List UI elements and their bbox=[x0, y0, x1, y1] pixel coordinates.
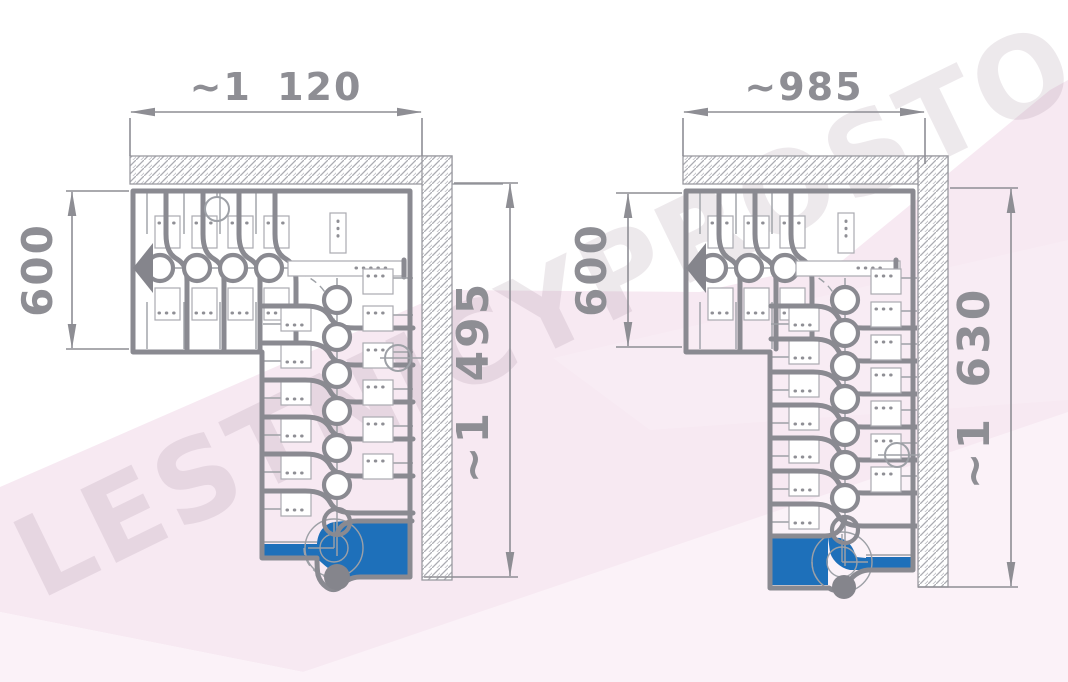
dimension-depth: 600 bbox=[13, 191, 129, 349]
drawing-canvas: LESTNICYPROSTO.RU bbox=[0, 0, 1068, 682]
step-modules-straight bbox=[147, 191, 296, 349]
entry-arrow bbox=[133, 243, 153, 293]
center-pole bbox=[324, 564, 350, 590]
dim-width-label: ~1 120 bbox=[190, 65, 363, 109]
staircase-plans-drawing: LESTNICYPROSTO.RU bbox=[0, 0, 1068, 682]
dim-length-label: ~1 630 bbox=[949, 287, 1000, 490]
dim-depth-label: 600 bbox=[13, 223, 62, 317]
dim-depth-label: 600 bbox=[567, 223, 616, 317]
dim-length-label: ~1 495 bbox=[448, 281, 499, 484]
center-pole bbox=[832, 575, 856, 599]
dim-width-label: ~985 bbox=[744, 65, 863, 109]
dimension-width: ~1 120 bbox=[130, 65, 422, 156]
